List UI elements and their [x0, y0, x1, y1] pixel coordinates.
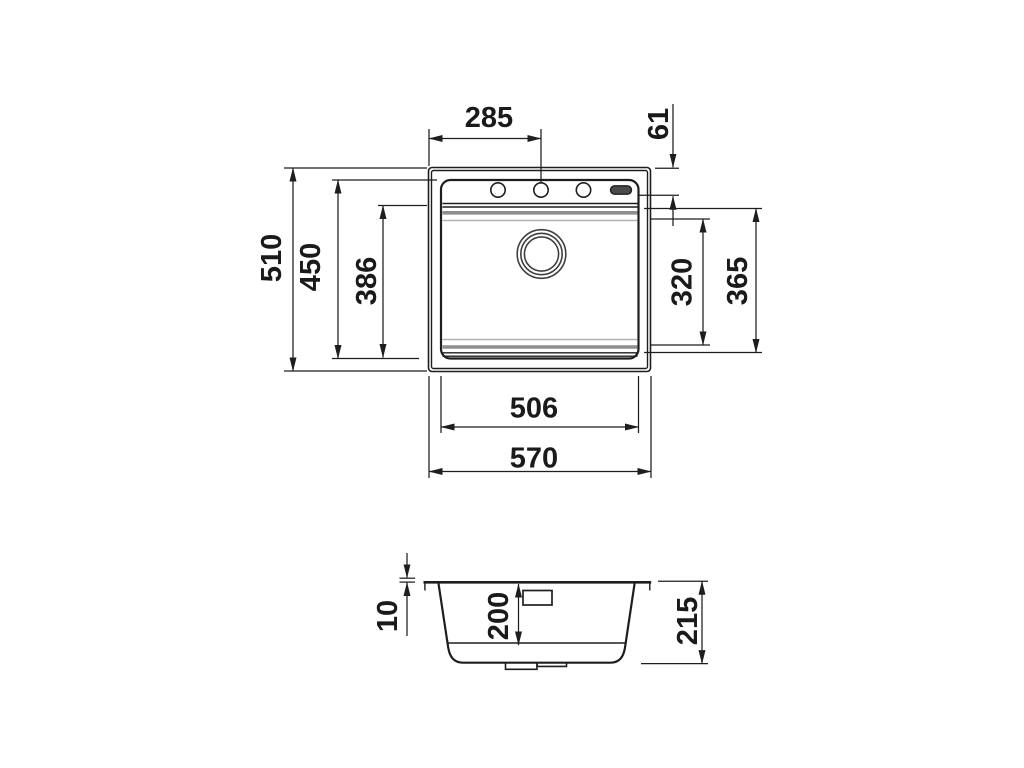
drain-fitting-outer — [506, 663, 538, 669]
dim-10: 10 — [372, 553, 415, 636]
dim-506: 506 — [441, 376, 639, 433]
dim-label-365: 365 — [722, 257, 754, 305]
sink-outer-edge — [429, 168, 651, 372]
overflow-slot — [611, 186, 632, 194]
drawing-svg: 285 61 510 450 386 — [0, 0, 1024, 768]
drain-circle — [517, 230, 566, 279]
dim-label-510: 510 — [256, 234, 288, 282]
dim-label-506: 506 — [510, 393, 558, 425]
section-view: 10 200 215 — [372, 553, 708, 669]
dim-label-215: 215 — [672, 597, 704, 645]
dim-label-386: 386 — [351, 257, 383, 305]
dim-510: 510 — [256, 168, 427, 371]
top-view: 285 61 510 450 386 — [256, 102, 762, 478]
dim-386: 386 — [351, 206, 427, 358]
tap-hole-left — [491, 183, 505, 197]
sink-technical-drawing: 285 61 510 450 386 — [0, 0, 1024, 768]
dim-label-200: 200 — [483, 592, 515, 640]
dim-label-320: 320 — [667, 258, 699, 306]
tap-hole-center — [534, 183, 548, 197]
dim-label-450: 450 — [295, 243, 327, 291]
dim-label-285: 285 — [465, 102, 513, 134]
dim-label-570: 570 — [510, 443, 558, 475]
dim-215: 215 — [641, 581, 708, 663]
dim-200: 200 — [483, 584, 519, 645]
dim-label-61: 61 — [643, 108, 675, 140]
dim-label-10: 10 — [372, 600, 404, 632]
tap-hole-right — [576, 183, 590, 197]
dim-61: 61 — [639, 104, 679, 226]
overflow-opening — [523, 591, 552, 606]
dim-320: 320 — [650, 219, 710, 345]
